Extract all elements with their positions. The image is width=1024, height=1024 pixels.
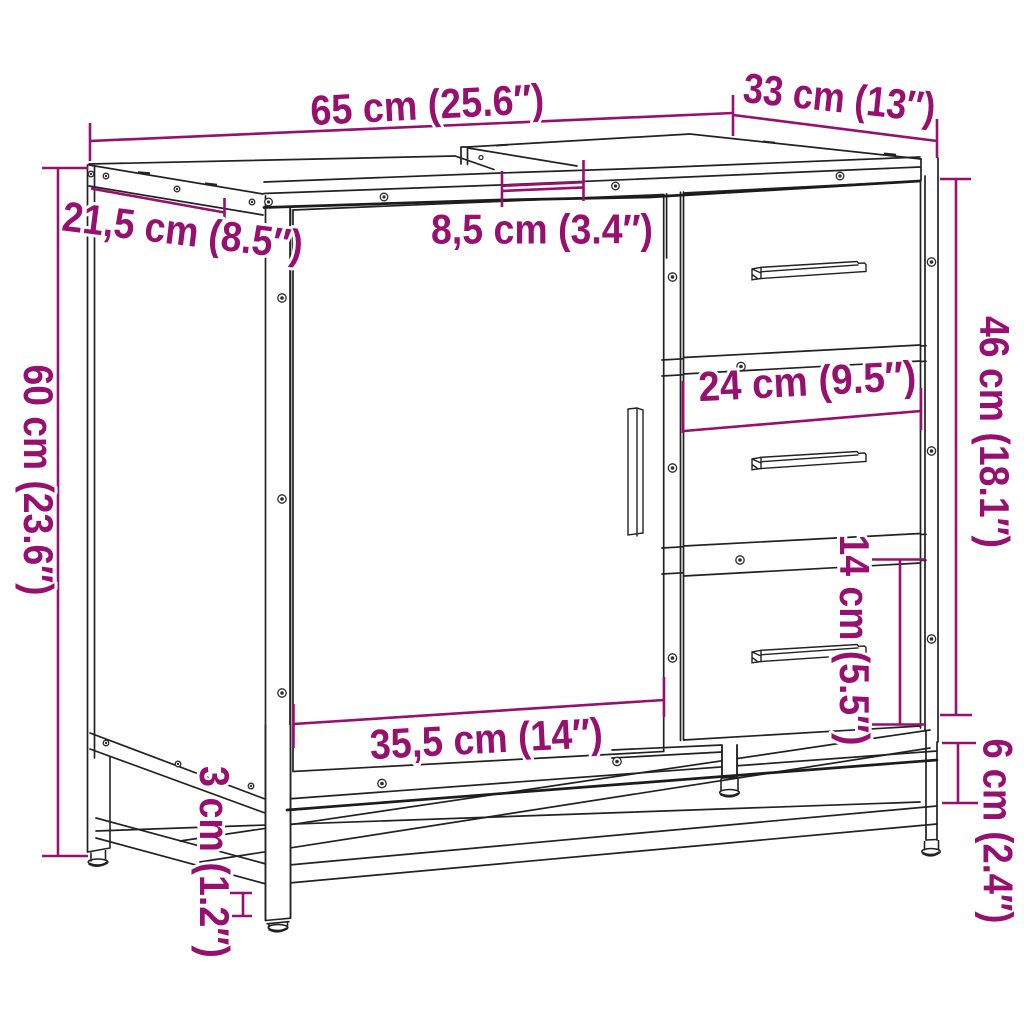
- svg-text:14 cm (5.5″): 14 cm (5.5″): [831, 535, 878, 746]
- svg-text:46 cm (18.1″): 46 cm (18.1″): [971, 316, 1018, 548]
- svg-text:8,5 cm (3.4″): 8,5 cm (3.4″): [431, 206, 653, 253]
- svg-text:3 cm (1.2″): 3 cm (1.2″): [191, 766, 238, 958]
- svg-text:6 cm (2.4″): 6 cm (2.4″): [975, 739, 1022, 924]
- svg-text:60 cm (23.6″): 60 cm (23.6″): [15, 365, 62, 596]
